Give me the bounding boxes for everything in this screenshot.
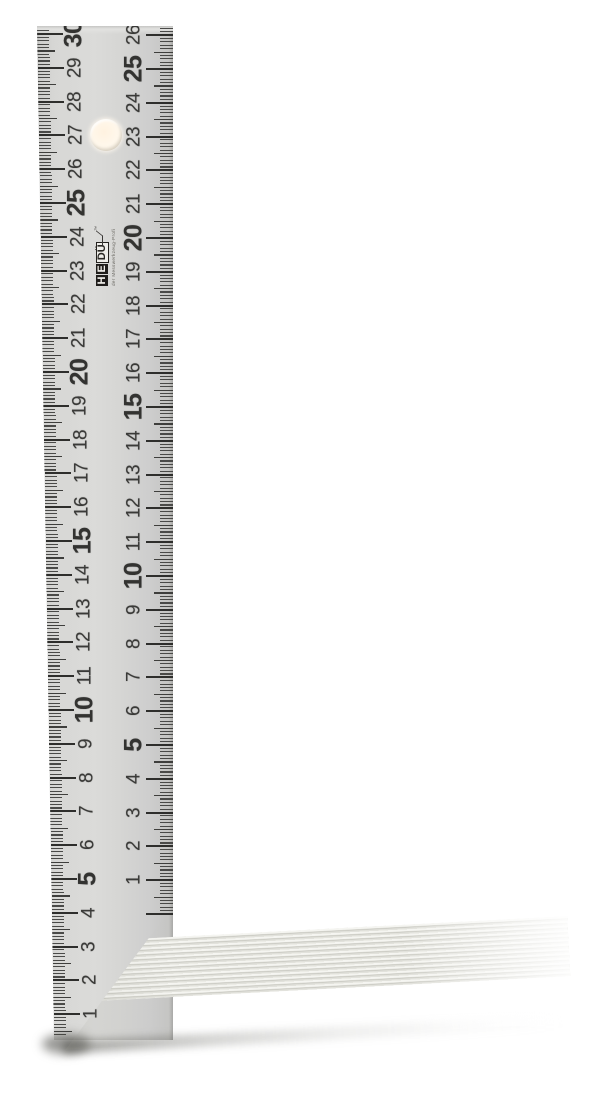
logo-tagline: der Messwerkzeug-Profi — [111, 229, 116, 286]
scale-number: 20 — [122, 225, 147, 252]
mm-tick — [160, 606, 173, 607]
mm-tick — [160, 116, 173, 117]
mm-tick — [38, 111, 50, 112]
mm-tick — [160, 538, 173, 539]
mm-tick — [53, 973, 65, 974]
mm-tick — [160, 261, 173, 262]
scale-number: 5 — [122, 738, 147, 751]
mm-tick — [39, 128, 51, 129]
mm-tick — [160, 650, 173, 651]
cm-tick — [38, 67, 64, 69]
scale-number: 23 — [125, 127, 144, 147]
mm-tick — [40, 233, 52, 234]
mm-tick — [160, 866, 173, 867]
mm-tick — [48, 669, 60, 670]
mm-tick — [160, 224, 173, 225]
mm-tick — [46, 567, 58, 568]
cm-tick — [146, 372, 173, 374]
mm-tick — [160, 454, 173, 455]
scale-number: 8 — [77, 773, 96, 783]
half-cm-tick — [53, 963, 71, 964]
scale-number: 24 — [125, 93, 144, 113]
mm-tick — [52, 899, 64, 900]
mm-tick — [160, 596, 173, 597]
cm-tick — [52, 946, 78, 948]
mm-tick — [160, 264, 173, 265]
mm-tick — [53, 983, 65, 984]
mm-tick — [160, 386, 173, 387]
mm-tick — [49, 713, 61, 714]
mm-tick — [160, 504, 173, 505]
scale-number: 16 — [125, 363, 144, 383]
mm-tick — [160, 535, 173, 536]
mm-tick — [40, 199, 52, 200]
mm-tick — [160, 633, 173, 634]
cm-tick — [41, 236, 67, 238]
half-cm-tick — [40, 186, 58, 187]
scale-number: 4 — [125, 774, 144, 784]
mm-tick — [54, 1020, 66, 1021]
mm-tick — [45, 483, 57, 484]
mm-tick — [52, 916, 64, 917]
mm-tick — [38, 108, 50, 109]
mm-tick — [160, 765, 173, 766]
cm-tick — [146, 507, 173, 509]
scale-number: 2 — [81, 975, 100, 985]
half-cm-tick — [154, 254, 173, 255]
mm-tick — [160, 160, 173, 161]
cm-tick — [146, 474, 173, 476]
mm-tick — [43, 385, 55, 386]
mm-tick — [45, 510, 57, 511]
scale-number: 3 — [125, 808, 144, 818]
mm-tick — [42, 311, 54, 312]
mm-tick — [160, 183, 173, 184]
mm-tick — [40, 192, 52, 193]
mm-tick — [160, 640, 173, 641]
mm-tick — [42, 324, 54, 325]
mm-tick — [49, 733, 61, 734]
mm-tick — [160, 707, 173, 708]
cm-tick — [146, 879, 173, 881]
mm-tick — [160, 832, 173, 833]
scale-number: 16 — [73, 497, 92, 517]
mm-tick — [53, 1007, 65, 1008]
scale-number: 6 — [78, 840, 97, 850]
mm-tick — [160, 738, 173, 739]
mm-tick — [160, 379, 173, 380]
cm-tick — [48, 675, 74, 677]
mm-tick — [160, 748, 173, 749]
mm-tick — [160, 842, 173, 843]
mm-tick — [160, 281, 173, 282]
cm-tick — [51, 844, 77, 846]
half-cm-tick — [46, 591, 64, 592]
mm-tick — [37, 47, 49, 48]
mm-tick — [160, 589, 173, 590]
mm-tick — [43, 378, 55, 379]
mm-tick — [39, 142, 51, 143]
scale-number: 19 — [125, 262, 144, 282]
mm-tick — [48, 689, 60, 690]
scale-number: 28 — [66, 92, 85, 112]
scale-number: 18 — [71, 430, 90, 450]
mm-tick — [50, 804, 62, 805]
mm-tick — [42, 300, 54, 301]
mm-tick — [53, 976, 65, 977]
mm-tick — [40, 229, 52, 230]
mm-tick — [51, 841, 63, 842]
mm-tick — [41, 267, 53, 268]
half-cm-tick — [154, 525, 173, 526]
mm-tick — [160, 450, 173, 451]
scale-number: 15 — [70, 528, 95, 555]
mm-tick — [43, 402, 55, 403]
mm-tick — [160, 477, 173, 478]
mm-tick — [46, 564, 58, 565]
scale-number: 11 — [75, 667, 94, 686]
mm-tick — [40, 175, 52, 176]
mm-tick — [160, 751, 173, 752]
mm-tick — [160, 697, 173, 698]
half-cm-tick — [154, 795, 173, 796]
half-cm-tick — [154, 829, 173, 830]
mm-tick — [45, 513, 57, 514]
mm-tick — [160, 89, 173, 90]
mm-tick — [46, 551, 58, 552]
scale-number: 7 — [125, 672, 144, 682]
half-cm-tick — [47, 625, 65, 626]
mm-tick — [41, 243, 53, 244]
mm-tick — [46, 547, 58, 548]
mm-tick — [160, 467, 173, 468]
mm-tick — [44, 419, 56, 420]
cm-tick — [146, 710, 173, 712]
mm-tick — [160, 332, 173, 333]
cm-tick — [46, 574, 72, 576]
half-cm-tick — [154, 390, 173, 391]
mm-tick — [43, 368, 55, 369]
mm-tick — [42, 327, 54, 328]
mm-tick — [160, 122, 173, 123]
mm-tick — [160, 298, 173, 299]
mm-tick — [46, 554, 58, 555]
mm-tick — [160, 501, 173, 502]
mm-tick — [43, 365, 55, 366]
scale-number: 3 — [80, 942, 99, 952]
mm-tick — [160, 876, 173, 877]
mm-tick — [160, 312, 173, 313]
half-cm-tick — [154, 660, 173, 661]
mm-tick — [39, 162, 51, 163]
mm-tick — [160, 579, 173, 580]
mm-tick — [49, 767, 61, 768]
mm-tick — [37, 54, 49, 55]
mm-tick — [160, 545, 173, 546]
mm-tick — [44, 442, 56, 443]
mm-tick — [160, 79, 173, 80]
mm-tick — [160, 859, 173, 860]
cm-tick — [49, 743, 75, 745]
mm-tick — [160, 302, 173, 303]
mm-tick — [49, 740, 61, 741]
mm-tick — [160, 258, 173, 259]
cm-tick — [146, 203, 173, 205]
half-cm-tick — [52, 895, 70, 896]
mm-tick — [160, 335, 173, 336]
mm-tick — [39, 138, 51, 139]
scale-number: 13 — [74, 599, 93, 619]
mm-tick — [50, 801, 62, 802]
scale-number: 10 — [122, 563, 147, 590]
mm-tick — [160, 75, 173, 76]
cm-tick — [146, 575, 173, 577]
mm-tick — [52, 892, 64, 893]
mm-tick — [38, 77, 50, 78]
scale-number: 20 — [67, 359, 92, 386]
mm-tick — [160, 41, 173, 42]
mm-tick — [160, 521, 173, 522]
mm-tick — [45, 480, 57, 481]
half-cm-tick — [37, 50, 55, 51]
mm-tick — [44, 432, 56, 433]
mm-tick — [160, 907, 173, 908]
half-cm-tick — [154, 728, 173, 729]
mm-tick — [49, 753, 61, 754]
mm-tick — [160, 734, 173, 735]
mm-tick — [52, 943, 64, 944]
mm-tick — [160, 285, 173, 286]
mm-tick — [160, 366, 173, 367]
half-cm-tick — [40, 219, 58, 220]
mm-tick — [160, 112, 173, 113]
mm-tick — [40, 223, 52, 224]
scale-number: 12 — [125, 498, 144, 518]
half-cm-tick — [154, 863, 173, 864]
mm-tick — [51, 889, 63, 890]
scale-number: 22 — [125, 160, 144, 180]
cm-tick — [50, 810, 76, 812]
mm-tick — [160, 234, 173, 235]
mm-tick — [160, 623, 173, 624]
half-cm-tick — [53, 997, 71, 998]
try-square-product-photo: 1234567891011121314151617181920212223242… — [0, 0, 600, 1095]
mm-tick — [41, 273, 53, 274]
mm-tick — [50, 791, 62, 792]
mm-tick — [160, 873, 173, 874]
mm-tick — [40, 189, 52, 190]
mm-tick — [160, 99, 173, 100]
mm-tick — [160, 528, 173, 529]
mm-tick — [160, 599, 173, 600]
mm-tick — [44, 469, 56, 470]
scale-number: 19 — [71, 396, 90, 416]
cm-tick — [146, 305, 173, 307]
mm-tick — [45, 530, 57, 531]
mm-tick — [41, 240, 53, 241]
logo-letter-h: H — [96, 275, 108, 286]
mm-tick — [160, 251, 173, 252]
mm-tick — [160, 109, 173, 110]
mm-tick — [50, 780, 62, 781]
mm-tick — [160, 227, 173, 228]
mm-tick — [52, 909, 64, 910]
cm-tick — [146, 676, 173, 678]
scale-number: 15 — [122, 394, 147, 421]
mm-tick — [40, 182, 52, 183]
mm-tick — [44, 453, 56, 454]
mm-tick — [39, 131, 51, 132]
brand-logo-row: H E DÜ ™ — [95, 227, 109, 286]
cm-tick — [146, 34, 173, 36]
mm-tick — [160, 95, 173, 96]
mm-tick — [44, 466, 56, 467]
mm-tick — [160, 572, 173, 573]
mm-tick — [45, 493, 57, 494]
mm-tick — [43, 392, 55, 393]
mm-tick — [43, 361, 55, 362]
mm-tick — [160, 758, 173, 759]
mm-tick — [160, 410, 173, 411]
mm-tick — [48, 652, 60, 653]
mm-tick — [160, 231, 173, 232]
mm-tick — [160, 815, 173, 816]
mm-tick — [49, 720, 61, 721]
mm-tick — [38, 104, 50, 105]
mm-tick — [51, 885, 63, 886]
mm-tick — [160, 156, 173, 157]
mm-tick — [51, 831, 63, 832]
mm-tick — [160, 278, 173, 279]
scale-number: 13 — [125, 465, 144, 485]
mm-tick — [160, 315, 173, 316]
mm-tick — [160, 883, 173, 884]
cm-tick — [146, 271, 173, 273]
half-cm-tick — [38, 84, 56, 85]
half-cm-tick — [39, 118, 57, 119]
mm-tick — [49, 716, 61, 717]
half-cm-tick — [46, 557, 64, 558]
mm-tick — [160, 329, 173, 330]
mm-tick — [41, 246, 53, 247]
mm-tick — [160, 447, 173, 448]
mm-tick — [160, 548, 173, 549]
mm-tick — [160, 616, 173, 617]
mm-tick — [48, 672, 60, 673]
mm-tick — [41, 284, 53, 285]
mm-tick — [47, 601, 59, 602]
mm-tick — [160, 785, 173, 786]
mm-tick — [160, 139, 173, 140]
scale-number: 30 — [62, 21, 87, 48]
logo-trademark: ™ — [94, 226, 100, 231]
mm-tick — [46, 561, 58, 562]
mm-tick — [42, 317, 54, 318]
cm-tick — [41, 270, 67, 272]
mm-tick — [48, 699, 60, 700]
mm-tick — [47, 622, 59, 623]
mm-tick — [160, 569, 173, 570]
scale-number: 9 — [77, 739, 96, 749]
mm-tick — [51, 855, 63, 856]
mm-tick — [160, 771, 173, 772]
mm-tick — [41, 290, 53, 291]
mm-tick — [160, 28, 173, 29]
mm-tick — [160, 849, 173, 850]
mm-tick — [38, 71, 50, 72]
mm-tick — [41, 280, 53, 281]
mm-tick — [44, 429, 56, 430]
mm-tick — [160, 673, 173, 674]
scale-number: 29 — [65, 58, 84, 78]
mm-tick — [39, 121, 51, 122]
half-cm-tick — [42, 321, 60, 322]
mm-tick — [160, 886, 173, 887]
mm-tick — [54, 1017, 66, 1018]
mm-tick — [160, 755, 173, 756]
mm-tick — [37, 30, 49, 31]
mm-tick — [46, 537, 58, 538]
mm-tick — [160, 308, 173, 309]
half-cm-tick — [43, 355, 61, 356]
mm-tick — [53, 953, 65, 954]
mm-tick — [45, 520, 57, 521]
mm-tick — [51, 865, 63, 866]
cm-tick — [39, 168, 65, 170]
mm-tick — [47, 598, 59, 599]
mm-tick — [45, 476, 57, 477]
half-cm-tick — [45, 524, 63, 525]
mm-tick — [39, 145, 51, 146]
mm-tick — [42, 297, 54, 298]
mm-tick — [160, 217, 173, 218]
mm-tick — [46, 571, 58, 572]
scale-number: 27 — [66, 125, 85, 145]
mm-tick — [47, 638, 59, 639]
mm-tick — [49, 757, 61, 758]
mm-tick — [160, 518, 173, 519]
mm-tick — [160, 400, 173, 401]
mm-tick — [51, 834, 63, 835]
mm-tick — [160, 731, 173, 732]
mm-tick — [160, 129, 173, 130]
mm-tick — [52, 936, 64, 937]
mm-tick — [160, 150, 173, 151]
mm-tick — [43, 398, 55, 399]
scale-number: 10 — [73, 697, 98, 724]
mm-tick — [160, 352, 173, 353]
mm-tick — [160, 295, 173, 296]
mm-tick — [160, 166, 173, 167]
mm-tick — [160, 48, 173, 49]
mm-tick — [41, 250, 53, 251]
cm-tick — [45, 506, 71, 508]
mm-tick — [160, 582, 173, 583]
mm-tick — [37, 44, 49, 45]
mm-tick — [160, 342, 173, 343]
half-cm-tick — [52, 929, 70, 930]
cm-tick — [146, 237, 173, 239]
mm-tick — [160, 602, 173, 603]
mm-tick — [53, 993, 65, 994]
mm-tick — [160, 613, 173, 614]
scale-number: 21 — [125, 194, 144, 214]
half-cm-tick — [154, 559, 173, 560]
mm-tick — [160, 684, 173, 685]
mm-tick — [39, 165, 51, 166]
mm-tick — [54, 1027, 66, 1028]
mm-tick — [52, 926, 64, 927]
